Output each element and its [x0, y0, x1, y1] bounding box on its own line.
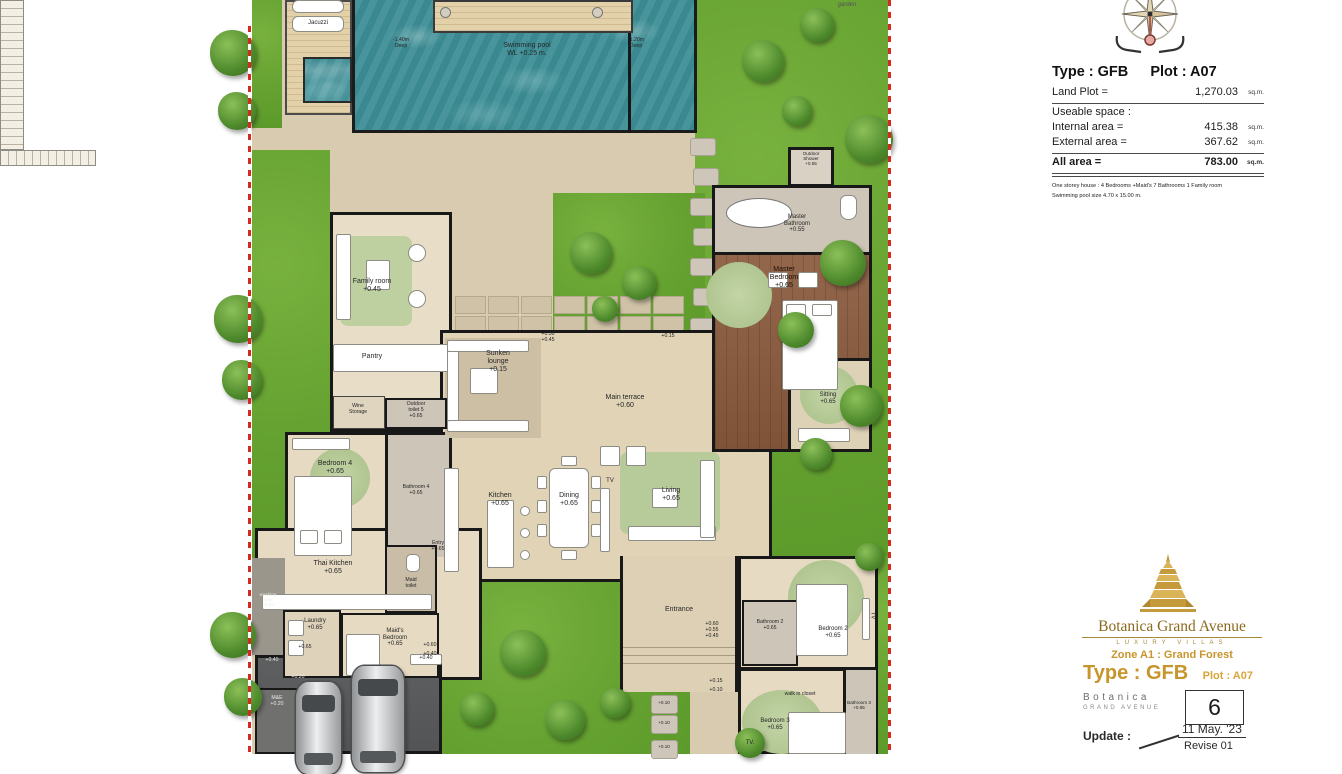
- unit-label: sq.m.: [1248, 139, 1264, 146]
- master-toilet: [840, 195, 857, 220]
- bedroom2-bed: [796, 584, 848, 656]
- label-tv-bedroom3: TV.: [746, 740, 755, 747]
- bedroom4-wardrobe: [292, 438, 350, 450]
- room-bathroom2: [742, 600, 798, 666]
- tree-icon: [782, 96, 812, 126]
- kitchen-counter: [444, 468, 459, 572]
- maid-toilet-fixture: [406, 554, 420, 572]
- walk-in-closet-shelf: [0, 150, 96, 166]
- master-bathtub: [726, 198, 792, 228]
- brand-word-block: Botanica Grand Avenue: [1083, 692, 1160, 711]
- living-chair: [600, 446, 620, 466]
- dining-chair: [537, 524, 547, 537]
- label-bedroom2: Bedroom 2+0.65: [818, 626, 847, 639]
- dining-chair: [537, 500, 547, 513]
- label-thai-kitchen: Thai Kitchen+0.65: [314, 560, 353, 576]
- all-area-row: All area = 783.00 sq.m.: [1052, 156, 1264, 171]
- tree-icon: [570, 232, 612, 274]
- label-kitchen: Kitchen+0.65: [488, 492, 511, 508]
- living-sofa: [700, 460, 715, 538]
- tree-icon: [222, 360, 262, 400]
- label-swimming-pool: Swimming poolWL +0.25 m.: [503, 42, 550, 58]
- pool-deck-top: [433, 0, 633, 33]
- panel-plot: Plot : A07: [1150, 64, 1216, 80]
- label-bathroom2: Bathroom 2+0.65: [757, 620, 784, 632]
- type-gfb: Type : GFB: [1083, 662, 1188, 684]
- family-armchair: [408, 244, 426, 262]
- useable-row: Useable space :: [1052, 106, 1264, 121]
- level-mark: +0.65: [298, 645, 311, 651]
- entrance-steps: [623, 640, 735, 664]
- floor-plan-sheet: { "info_panel": { "type_label": "Type : …: [0, 0, 1342, 754]
- level-mark: +0.60: [423, 643, 436, 649]
- tree-icon: [592, 296, 618, 322]
- tv-wall: [600, 488, 610, 552]
- master-closet: [0, 0, 24, 150]
- tree-icon: [622, 266, 656, 300]
- tree-icon: [800, 438, 832, 470]
- pantry-counter: [333, 344, 449, 372]
- jacuzzi-pool: [303, 57, 352, 103]
- double-divider: [1052, 173, 1264, 177]
- stepping-stone: [690, 138, 716, 156]
- note-pool: Swimming pool size 4.70 x 15.00 m.: [1052, 192, 1264, 202]
- bedroom4-pillow: [300, 530, 318, 544]
- thai-kitchen-counter: [262, 594, 432, 610]
- car-rear-window: [304, 753, 333, 765]
- tree-icon: [500, 630, 546, 676]
- brand-sub: Grand Avenue: [1083, 705, 1160, 711]
- label-washing-area: washingarea+0.55: [260, 592, 277, 607]
- room-bathroom3: [843, 670, 876, 754]
- unit-label: sq.m.: [1248, 124, 1264, 131]
- pagoda-logo-icon: [1136, 554, 1200, 618]
- tree-icon: [214, 295, 262, 343]
- entrance-corridor: [620, 556, 738, 692]
- stepping-stone: [693, 168, 719, 186]
- brand-tagline: Luxury villas: [1082, 640, 1262, 646]
- area-info-panel: Type : GFB Plot : A07 Land Plot = 1,270.…: [1052, 64, 1264, 201]
- label-master-bedroom: MasterBedroom+0.65: [770, 266, 798, 289]
- tree-icon: [460, 692, 494, 726]
- stepping-stone: [651, 740, 678, 759]
- update-date: 11 May. '23: [1178, 722, 1246, 738]
- internal-value: 415.38: [1204, 121, 1238, 133]
- label-family-room: Family room+0.45: [353, 278, 392, 294]
- external-label: External area =: [1052, 136, 1127, 148]
- plot-number-box: 6: [1185, 690, 1244, 725]
- level-mark: +0.20: [291, 675, 304, 681]
- label-maids-bedroom: Maid'sBedroom+0.65: [383, 628, 407, 648]
- sun-lounger: [292, 0, 344, 13]
- dining-chair: [591, 476, 601, 489]
- level-mark: +0.15: [661, 334, 674, 340]
- master-rug: [706, 262, 772, 328]
- plot-number: 6: [1208, 694, 1221, 721]
- bedroom4-bed: [294, 476, 352, 556]
- paving-slab: [521, 296, 552, 314]
- tree-icon: [742, 40, 784, 82]
- bedroom3-bed: [788, 712, 846, 754]
- label-pool-deep-right: -1.20mDeep: [628, 38, 644, 50]
- dining-chair: [561, 456, 577, 466]
- label-me-room: M&E+0.20: [270, 696, 283, 708]
- panel-type-plot: Type : GFB Plot : A07: [1052, 64, 1264, 80]
- tree-icon: [600, 688, 630, 718]
- tree-icon: [840, 385, 882, 427]
- label-sunken-lounge: Sunkenlounge+0.15: [486, 350, 510, 373]
- compass-rose-icon: [1095, 0, 1205, 60]
- kitchen-stool: [520, 506, 530, 516]
- tree-icon: [855, 543, 883, 571]
- type-line: Type : GFB Plot : A07: [1083, 662, 1253, 685]
- label-garden: garden: [838, 2, 857, 9]
- kitchen-island: [487, 500, 514, 568]
- label-entrance-levels: +0.60+0.55+0.45: [705, 622, 718, 639]
- level-mark: +0.30+0.45: [541, 332, 554, 344]
- dining-chair: [561, 550, 577, 560]
- car-rear-window: [360, 751, 396, 763]
- land-plot-value: 1,270.03: [1195, 86, 1238, 98]
- brand-name: Botanica Grand Avenue: [1082, 618, 1262, 638]
- label-bedroom4: Bedroom 4+0.65: [318, 460, 352, 476]
- revise-label: Revise 01: [1184, 740, 1233, 752]
- all-area-label: All area =: [1052, 156, 1101, 168]
- external-row: External area = 367.62 sq.m.: [1052, 136, 1264, 151]
- sunken-sofa: [447, 340, 459, 432]
- label-main-terrace: Main terrace+0.60: [606, 394, 645, 410]
- label-entry: Entry+0.65: [431, 541, 444, 553]
- label-wine-storage: WineStorage: [349, 404, 367, 416]
- panel-type: Type : GFB: [1052, 64, 1128, 80]
- paving-slab: [653, 296, 684, 314]
- level-mark: +0.10: [709, 688, 722, 694]
- level-mark: +0.10: [658, 700, 670, 705]
- parasol-base-icon: [440, 7, 451, 18]
- kitchen-stool: [520, 550, 530, 560]
- car: [352, 666, 404, 772]
- label-maid-toilet: Maidtoilet: [405, 578, 416, 590]
- car-windshield: [358, 679, 398, 696]
- tree-icon: [778, 312, 814, 348]
- bedroom4-pillow: [324, 530, 342, 544]
- tree-icon: [224, 678, 262, 716]
- tree-icon: [800, 8, 834, 42]
- dining-table: [549, 468, 589, 548]
- paving-slab: [455, 296, 486, 314]
- update-label: Update :: [1083, 729, 1131, 743]
- land-plot-label: Land Plot =: [1052, 86, 1108, 98]
- label-bathroom3: Bathroom 3+0.65: [847, 700, 871, 710]
- tree-icon: [545, 700, 585, 740]
- car-windshield: [302, 695, 335, 712]
- plot-a07: Plot : A07: [1203, 670, 1253, 682]
- external-value: 367.62: [1204, 136, 1238, 148]
- dining-chair: [537, 476, 547, 489]
- label-sitting: Sitting+0.65: [820, 392, 837, 405]
- divider: [1052, 103, 1264, 104]
- label-walk-in-closet: walk in closet: [785, 692, 816, 698]
- paving-slab: [488, 296, 519, 314]
- master-vanity: [798, 272, 818, 288]
- internal-row: Internal area = 415.38 sq.m.: [1052, 121, 1264, 136]
- label-pantry: Pantry: [362, 353, 382, 361]
- family-armchair: [408, 290, 426, 308]
- label-tv-living: TV: [606, 478, 614, 485]
- brand-block: Botanica Grand Avenue Luxury villas Zone…: [1082, 618, 1262, 661]
- level-mark: +0.15: [709, 679, 722, 685]
- label-entrance: Entrance: [665, 606, 693, 614]
- parasol-base-icon: [592, 7, 603, 18]
- property-line-left: [248, 26, 251, 754]
- level-mark: +0.10: [658, 744, 670, 749]
- panel-notes: One storey house : 4 Bedrooms +Maid's 7 …: [1052, 182, 1264, 201]
- washing-machine: [288, 620, 304, 636]
- useable-label: Useable space :: [1052, 106, 1131, 118]
- family-sofa: [336, 234, 351, 320]
- tree-icon: [845, 115, 893, 163]
- label-outdoor-toilet5: Outdoortoilet 5+0.65: [407, 402, 426, 419]
- label-dining: Dining+0.65: [559, 492, 579, 508]
- kitchen-stool: [520, 528, 530, 538]
- brand-word: Botanica: [1083, 692, 1160, 703]
- internal-label: Internal area =: [1052, 121, 1123, 133]
- level-mark: +0.40: [265, 658, 278, 664]
- label-bedroom3: Bedroom 3+0.65: [760, 718, 789, 731]
- level-mark: +0.10: [658, 720, 670, 725]
- label-tv-bedroom2: TV: [869, 612, 876, 620]
- living-chair: [626, 446, 646, 466]
- label-master-bathroom: MasterBathroom+0.55: [784, 214, 810, 234]
- unit-label: sq.m.: [1247, 159, 1264, 166]
- land-plot-row: Land Plot = 1,270.03 sq.m.: [1052, 86, 1264, 101]
- label-living: Living+0.65: [662, 487, 680, 503]
- label-laundry: Laundry+0.65: [304, 618, 326, 631]
- label-outdoor-shower: OutdoorShower+0.55: [803, 151, 820, 166]
- sunken-sofa: [447, 420, 529, 432]
- unit-label: sq.m.: [1248, 89, 1264, 96]
- level-mark: +0.40: [423, 652, 436, 658]
- label-jacuzzi: Jacuzzi: [308, 20, 328, 27]
- divider: [1052, 153, 1264, 154]
- grass-top-left: [252, 0, 282, 128]
- zone-label: Zone A1 : Grand Forest: [1082, 649, 1262, 661]
- car: [296, 682, 341, 774]
- master-pillow: [812, 304, 832, 316]
- all-area-value: 783.00: [1204, 156, 1238, 168]
- tree-icon: [820, 240, 866, 286]
- label-bathroom4: Bathroom 4+0.65: [403, 485, 430, 497]
- label-pool-deep-left: -1.40mDeep: [393, 38, 409, 50]
- paving-slab: [554, 296, 585, 314]
- property-line-right: [888, 0, 891, 754]
- note-house: One storey house : 4 Bedrooms +Maid's 7 …: [1052, 182, 1264, 192]
